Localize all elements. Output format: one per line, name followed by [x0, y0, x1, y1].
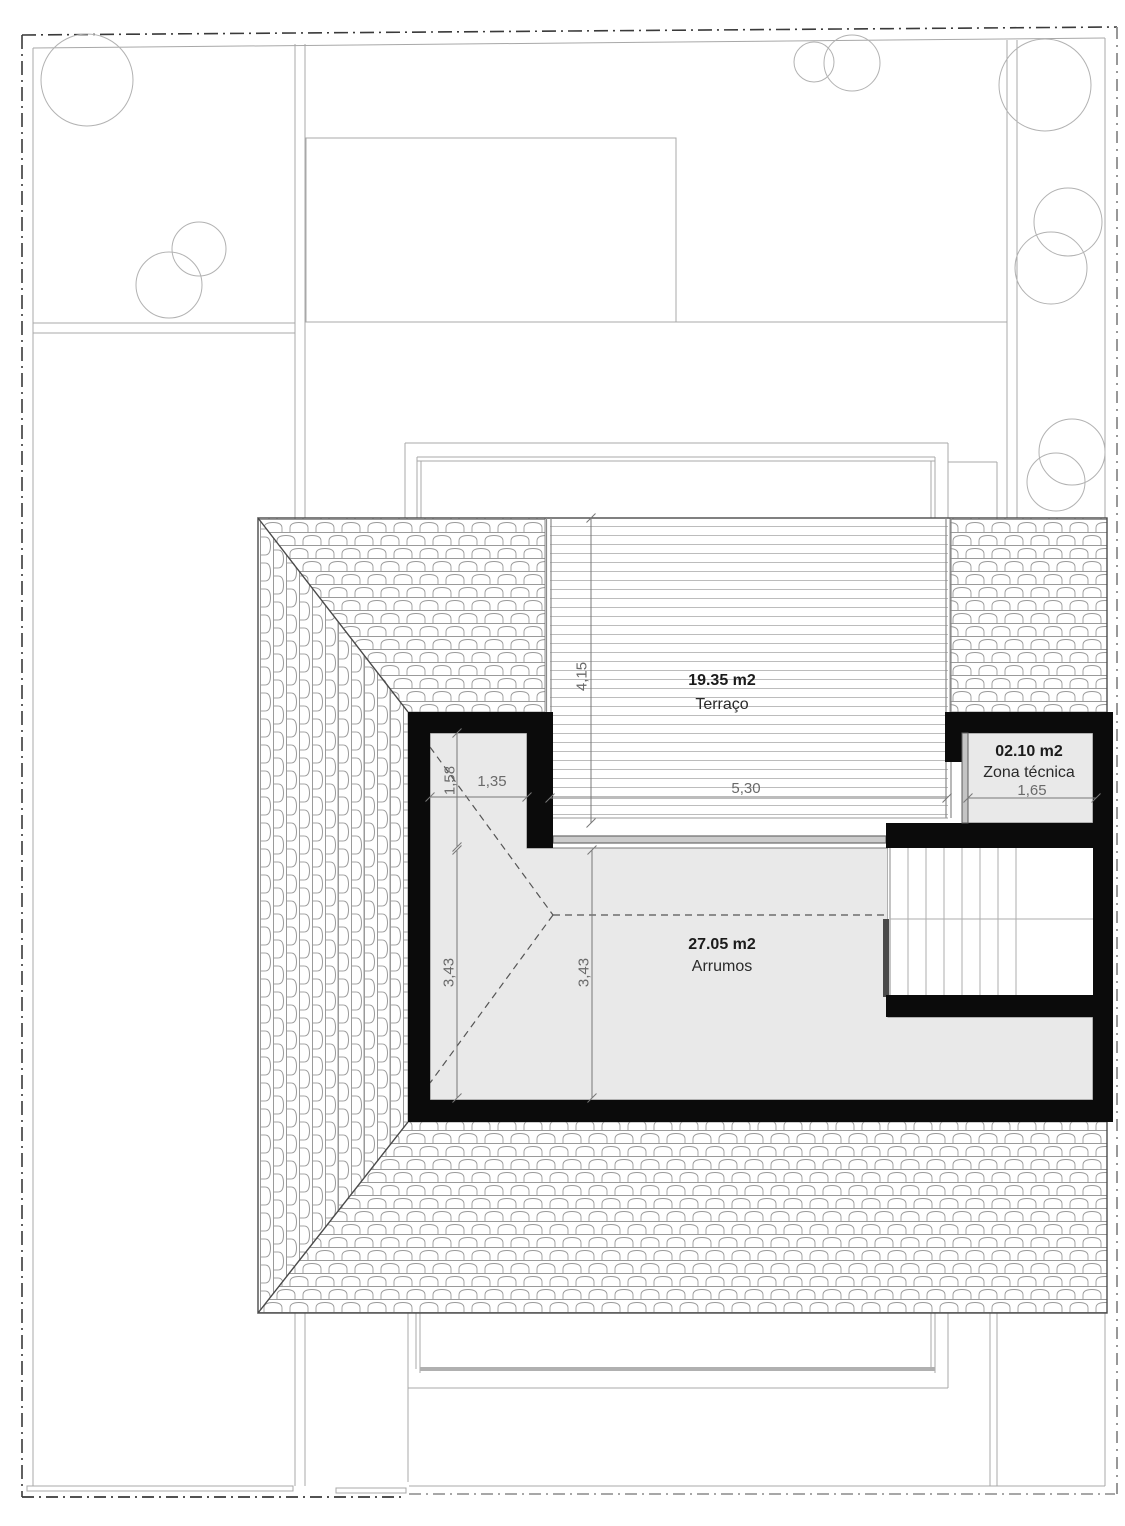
tree	[1039, 419, 1105, 485]
zona-door	[962, 733, 968, 823]
tree	[824, 35, 880, 91]
trees	[41, 34, 1105, 511]
terrace-balustrade	[553, 836, 886, 843]
zona-tecnica-floor	[968, 733, 1093, 823]
roof-face-top-right	[950, 518, 1107, 712]
tree	[1027, 453, 1085, 511]
stair-guard	[883, 919, 889, 997]
tree	[136, 252, 202, 318]
tree	[999, 39, 1091, 131]
stairs	[883, 848, 1093, 997]
terrace-deck	[547, 518, 952, 843]
floor-plan-page: 19.35 m2 Terraço 02.10 m2 Zona técnica 2…	[0, 0, 1125, 1526]
tree	[172, 222, 226, 276]
tree	[1015, 232, 1087, 304]
floor-plan-drawing	[0, 0, 1125, 1526]
tree	[1034, 188, 1102, 256]
